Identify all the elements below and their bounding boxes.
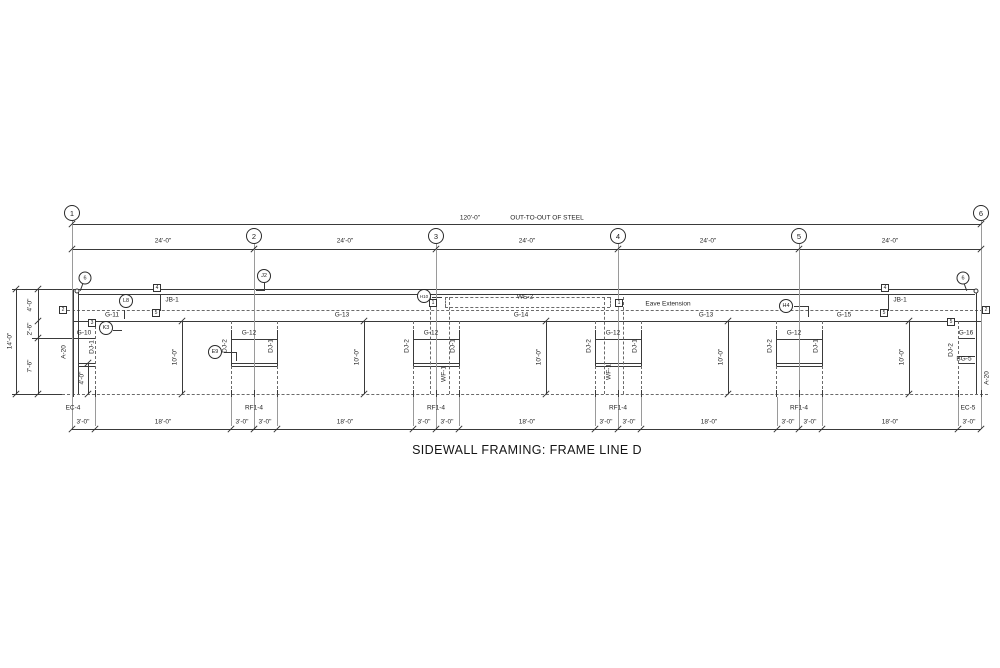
drawing-text: JB-1 <box>165 297 178 304</box>
drawing-text: 10'-0" <box>536 349 543 366</box>
clip-square: 4 <box>881 284 889 292</box>
line-horizontal <box>958 338 975 339</box>
line-vertical <box>231 330 232 366</box>
drawing-text: WF-1 <box>441 366 448 382</box>
drawing-text: EC-4 <box>66 405 81 412</box>
line-vertical <box>595 390 596 397</box>
clip-square: 5 <box>880 309 888 317</box>
drawing-text: 18'-0" <box>155 419 172 426</box>
line-vertical <box>95 390 96 397</box>
line-horizontal <box>32 338 95 339</box>
line-vertical <box>641 390 642 397</box>
line-vertical <box>822 330 823 366</box>
clip-square: 1 <box>615 299 623 307</box>
drawing-text: DJ-1 <box>89 340 96 354</box>
clip-square: 1 <box>429 299 437 307</box>
line-vertical <box>799 390 800 397</box>
drawing-text: 3'-0" <box>418 419 431 426</box>
line-vertical <box>254 390 255 397</box>
drawing-text: DJ-2 <box>222 339 229 353</box>
clip-square: 4 <box>153 284 161 292</box>
line-horizontal <box>113 330 122 331</box>
line-vertical <box>38 289 39 394</box>
line-vertical <box>776 390 777 397</box>
connection-node <box>974 289 979 294</box>
line-vertical <box>808 306 809 317</box>
grid-bubble: 6 <box>973 205 989 221</box>
line-vertical <box>16 289 17 394</box>
drawing-text: G-14 <box>514 312 528 319</box>
drawing-text: BG-5 <box>956 356 971 363</box>
line-vertical <box>254 244 255 429</box>
line-vertical <box>776 330 777 366</box>
line-vertical <box>641 397 642 426</box>
drawing-text: G-13 <box>699 312 713 319</box>
line-vertical <box>822 397 823 426</box>
dimension-tick <box>977 425 984 432</box>
line-vertical <box>413 390 414 397</box>
line-vertical <box>277 390 278 397</box>
line-vertical <box>777 397 778 426</box>
drawing-text: 24'-0" <box>337 238 354 245</box>
drawing-text: 3'-0" <box>441 419 454 426</box>
drawing-text: 14'-0" <box>7 333 14 350</box>
drawing-text: DJ-2 <box>404 339 411 353</box>
line-vertical <box>231 397 232 426</box>
line-horizontal <box>72 249 981 250</box>
clip-square: 3 <box>88 319 96 327</box>
line-vertical <box>445 297 446 307</box>
drawing-text: A-20 <box>61 345 68 359</box>
line-vertical <box>459 330 460 366</box>
line-horizontal <box>72 429 981 430</box>
line-vertical <box>95 397 96 426</box>
drawing-text: A-20 <box>984 371 991 385</box>
grid-bubble: 5 <box>791 228 807 244</box>
drawing-text: 24'-0" <box>882 238 899 245</box>
drawing-text: 120'-0" <box>460 215 480 222</box>
drawing-text: DJ-2 <box>948 343 955 357</box>
grid-bubble: 3 <box>428 228 444 244</box>
line-horizontal <box>794 306 808 307</box>
drawing-text: RF1-4 <box>245 405 263 412</box>
drawing-text: 18'-0" <box>882 419 899 426</box>
drawing-text: EC-5 <box>961 405 976 412</box>
line-vertical <box>958 390 959 397</box>
drawing-text: 3'-0" <box>804 419 817 426</box>
line-vertical <box>236 352 237 361</box>
drawing-text: 10'-0" <box>354 349 361 366</box>
drawing-text: G-12 <box>424 330 438 337</box>
line-vertical <box>364 321 365 394</box>
line-vertical <box>182 321 183 394</box>
drawing-text: G-12 <box>787 330 801 337</box>
drawing-title: SIDEWALL FRAMING: FRAME LINE D <box>412 443 642 457</box>
connection-node <box>75 289 80 294</box>
drawing-text: G-10 <box>77 330 91 337</box>
callout-circle: L8 <box>119 294 133 308</box>
line-vertical <box>459 397 460 426</box>
drawing-text: 3'-0" <box>600 419 613 426</box>
grid-bubble: 1 <box>64 205 80 221</box>
drawing-text: G-12 <box>606 330 620 337</box>
line-horizontal <box>73 289 977 290</box>
line-vertical <box>976 289 977 394</box>
drawing-text: 10'-0" <box>172 349 179 366</box>
line-horizontal <box>12 289 72 290</box>
line-vertical <box>981 390 982 397</box>
drawing-text: JB-1 <box>893 297 906 304</box>
drawing-text: WF-1 <box>606 364 613 380</box>
line-vertical <box>95 321 96 394</box>
clip-square: 5 <box>152 309 160 317</box>
line-vertical <box>981 221 982 429</box>
line-vertical <box>623 297 624 394</box>
line-horizontal <box>432 297 442 298</box>
line-vertical <box>277 330 278 366</box>
drawing-text: 3'-0" <box>623 419 636 426</box>
line-horizontal <box>256 290 264 291</box>
drawing-sheet: 120'-0"OUT-TO-OUT OF STEEL24'-0"24'-0"24… <box>0 0 1000 668</box>
line-vertical <box>618 390 619 397</box>
drawing-text: DJ-1 <box>450 339 457 353</box>
drawing-text: 3'-0" <box>77 419 90 426</box>
line-vertical <box>436 390 437 397</box>
line-vertical <box>436 244 437 429</box>
drawing-text: 4'-0" <box>27 299 34 312</box>
line-vertical <box>88 363 89 394</box>
line-horizontal <box>72 224 981 225</box>
drawing-text: DJ-1 <box>268 339 275 353</box>
line-vertical <box>459 390 460 397</box>
line-vertical <box>430 297 431 394</box>
line-vertical <box>641 330 642 366</box>
drawing-text: 7'-6" <box>27 360 34 373</box>
drawing-text: RF1-4 <box>609 405 627 412</box>
clip-square: 2 <box>982 306 990 314</box>
drawing-text: 24'-0" <box>700 238 717 245</box>
line-vertical <box>73 289 74 394</box>
drawing-text: G-11 <box>105 312 119 319</box>
drawing-text: 18'-0" <box>701 419 718 426</box>
drawing-text: 24'-0" <box>519 238 536 245</box>
line-vertical <box>799 244 800 429</box>
line-vertical <box>958 397 959 426</box>
drawing-text: 4'-0" <box>79 372 86 385</box>
line-vertical <box>728 321 729 394</box>
line-horizontal <box>72 321 981 322</box>
drawing-text: 10'-0" <box>718 349 725 366</box>
line-vertical <box>231 390 232 397</box>
callout-circle: E9 <box>208 345 222 359</box>
drawing-text: RF1-4 <box>790 405 808 412</box>
line-vertical <box>546 321 547 394</box>
drawing-text: 10'-0" <box>899 349 906 366</box>
line-vertical <box>618 244 619 429</box>
drawing-text: 3'-0" <box>963 419 976 426</box>
drawing-text: G-13 <box>335 312 349 319</box>
callout-circle: K3 <box>99 321 113 335</box>
line-vertical <box>124 310 125 319</box>
line-vertical <box>595 330 596 366</box>
drawing-text: 3'-0" <box>782 419 795 426</box>
drawing-text: OUT-TO-OUT OF STEEL <box>510 215 583 222</box>
drawing-text: 24'-0" <box>155 238 172 245</box>
line-vertical <box>888 294 889 311</box>
line-vertical <box>73 390 74 397</box>
line-vertical <box>413 397 414 426</box>
line-vertical <box>595 397 596 426</box>
line-vertical <box>160 294 161 311</box>
line-vertical <box>264 283 265 291</box>
drawing-text: G-15 <box>837 312 851 319</box>
grid-bubble: 2 <box>246 228 262 244</box>
drawing-text: Eave Extension <box>645 301 690 308</box>
line-horizontal <box>78 366 95 367</box>
line-vertical <box>413 330 414 366</box>
line-vertical <box>277 397 278 426</box>
grid-bubble: 4 <box>610 228 626 244</box>
drawing-text: 2'-6" <box>27 323 34 336</box>
line-horizontal <box>445 307 610 308</box>
callout-circle: 6 <box>957 272 970 285</box>
drawing-text: 3'-0" <box>259 419 272 426</box>
drawing-text: G-16 <box>959 330 973 337</box>
drawing-text: 18'-0" <box>519 419 536 426</box>
line-vertical <box>909 321 910 394</box>
callout-circle: H4 <box>779 299 793 313</box>
drawing-text: WE-2 <box>517 294 533 301</box>
line-vertical <box>822 390 823 397</box>
line-horizontal <box>958 363 975 364</box>
callout-circle: 6 <box>79 272 92 285</box>
drawing-text: G-12 <box>242 330 256 337</box>
drawing-text: DJ-2 <box>586 339 593 353</box>
drawing-text: 18'-0" <box>337 419 354 426</box>
line-horizontal <box>62 394 988 395</box>
drawing-text: DJ-2 <box>767 339 774 353</box>
drawing-text: 3'-0" <box>236 419 249 426</box>
line-vertical <box>610 297 611 307</box>
drawing-text: RF1-4 <box>427 405 445 412</box>
clip-square: 5 <box>947 318 955 326</box>
line-vertical <box>72 221 73 429</box>
drawing-text: DJ-1 <box>813 339 820 353</box>
clip-square: 2 <box>59 306 67 314</box>
drawing-text: DJ-1 <box>632 339 639 353</box>
callout-circle: J2 <box>257 269 271 283</box>
